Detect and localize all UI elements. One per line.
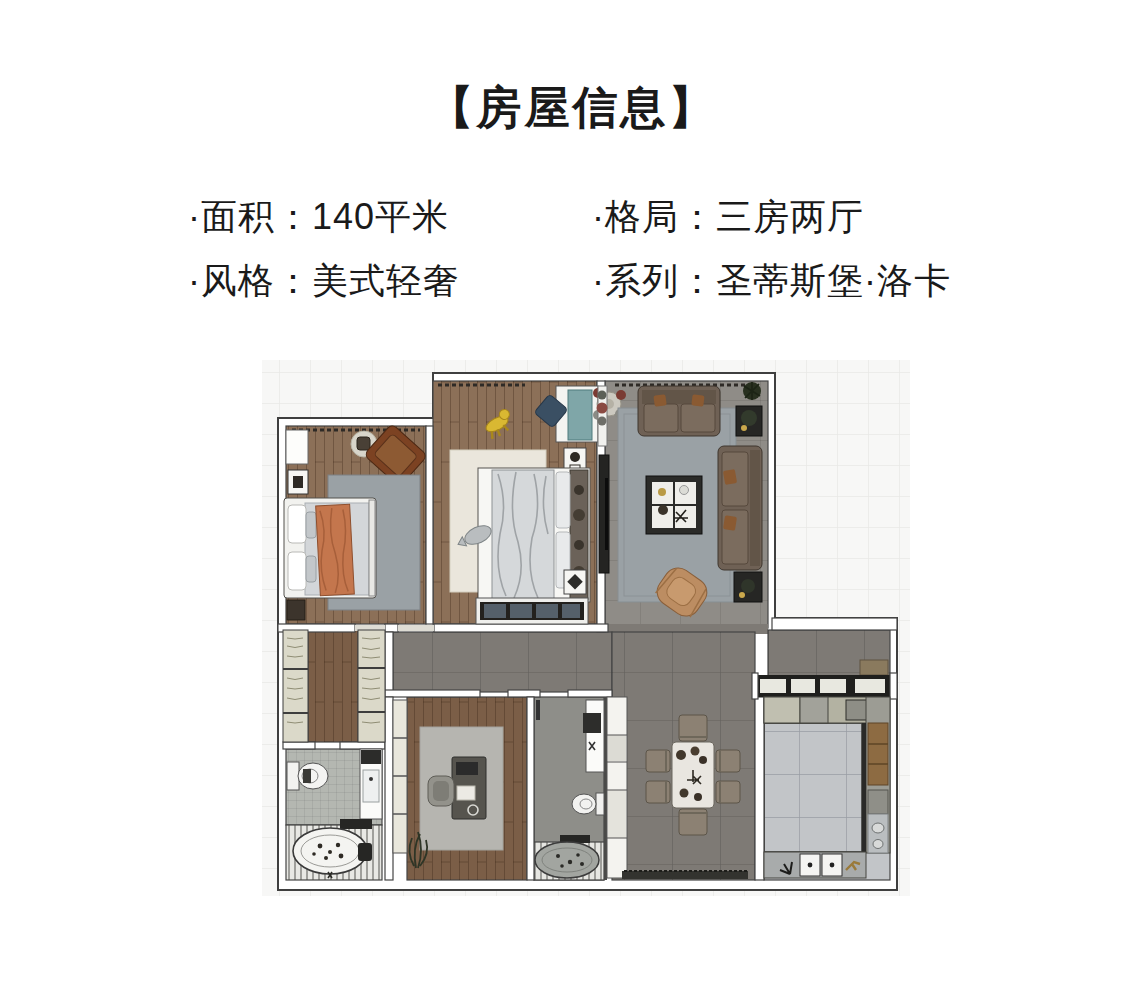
nightstand bbox=[564, 570, 586, 594]
sofa-right bbox=[718, 446, 762, 570]
bedroom-1 bbox=[284, 424, 428, 620]
pillow bbox=[556, 472, 570, 528]
vanity bbox=[360, 749, 382, 819]
pillow bbox=[288, 505, 306, 543]
counter-bottom bbox=[764, 852, 866, 878]
cabinet bbox=[286, 430, 308, 464]
side-table bbox=[734, 572, 762, 602]
bathtub bbox=[535, 842, 599, 878]
window-bench bbox=[476, 598, 588, 624]
glass-partition bbox=[752, 673, 897, 699]
coffee-table bbox=[646, 476, 702, 534]
dining-table bbox=[672, 742, 714, 808]
entry-mat bbox=[622, 871, 748, 879]
doormat bbox=[860, 660, 888, 675]
side-table bbox=[736, 406, 762, 436]
duvet bbox=[492, 470, 554, 600]
orange-blanket bbox=[316, 504, 355, 596]
desk bbox=[452, 757, 486, 819]
counter-top bbox=[764, 697, 880, 723]
counter-right bbox=[862, 697, 890, 853]
nightstand bbox=[287, 600, 305, 620]
info-style: ·风格：美式轻奢 bbox=[188, 257, 460, 306]
page-title: 【房屋信息】 bbox=[0, 78, 1145, 138]
info-series: ·系列：圣蒂斯堡·洛卡 bbox=[592, 257, 951, 306]
tub-caddy bbox=[358, 843, 372, 861]
floor-plan bbox=[262, 360, 910, 896]
toilet bbox=[287, 762, 328, 790]
hall-cabinet bbox=[607, 697, 627, 878]
plant bbox=[743, 382, 761, 400]
pillow bbox=[288, 552, 306, 590]
study-cabinet bbox=[393, 700, 407, 853]
shelf bbox=[340, 819, 372, 829]
desk-chair bbox=[428, 776, 454, 806]
stool bbox=[357, 437, 370, 450]
wardrobe-right bbox=[358, 630, 385, 742]
toilet bbox=[572, 793, 604, 815]
towel-bar bbox=[536, 700, 540, 720]
bed bbox=[284, 498, 376, 598]
info-area: ·面积：140平米 bbox=[188, 193, 449, 242]
vanity bbox=[583, 700, 604, 772]
living-room bbox=[593, 382, 762, 622]
info-layout: ·格局：三房两厅 bbox=[592, 193, 864, 242]
wardrobe-left bbox=[283, 630, 308, 742]
sofa-top bbox=[638, 386, 720, 436]
